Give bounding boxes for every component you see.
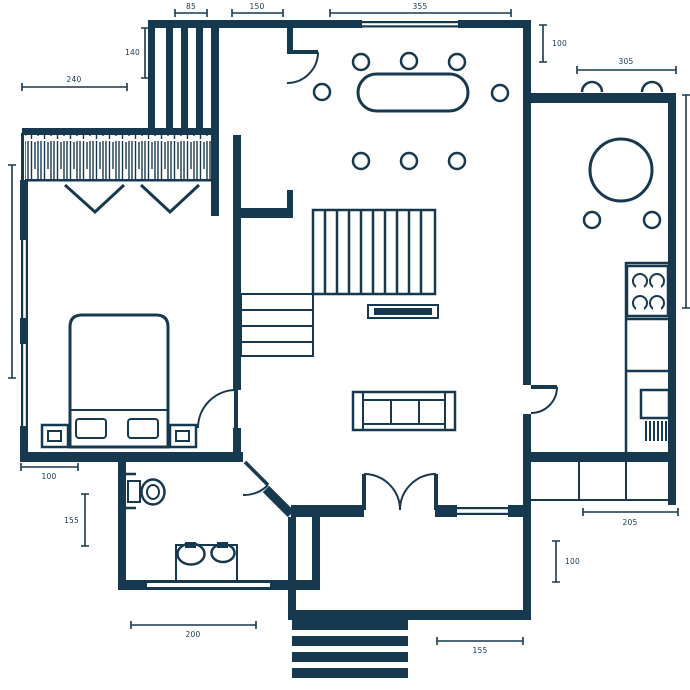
right-wall-upper xyxy=(523,20,531,385)
floor-plan-canvas: 85 150 355 140 240 100 305 10 xyxy=(0,0,690,690)
nightstand-right xyxy=(170,425,196,447)
dining-set xyxy=(314,53,508,169)
closet-divider-2 xyxy=(181,27,188,128)
window-living-south xyxy=(457,507,508,515)
dim-bath-width: 200 xyxy=(131,621,256,639)
kitchen-sink xyxy=(641,390,669,441)
dim-edge-right xyxy=(682,95,690,308)
kitchen-chair xyxy=(584,212,600,228)
dining-door-swing xyxy=(287,50,318,83)
living-south-wall-a xyxy=(291,505,364,517)
living-furniture xyxy=(353,305,455,430)
dim-label: 355 xyxy=(413,2,428,11)
floor-plan-drawing: 85 150 355 140 240 100 305 10 xyxy=(0,0,690,690)
staircase xyxy=(241,210,435,356)
porch-steps xyxy=(292,620,408,678)
window-top xyxy=(362,21,458,28)
dim-label: 155 xyxy=(473,646,488,655)
staircase-upper-treads xyxy=(325,210,421,294)
kitchen-south-wall xyxy=(531,452,676,462)
nightstand-left-drawer xyxy=(48,431,61,441)
window-left-2 xyxy=(21,344,28,426)
closet-bottom-wall xyxy=(22,128,211,135)
left-wall-mullion-1 xyxy=(20,318,28,344)
dining-chair xyxy=(401,53,417,69)
dim-hall-width: 150 xyxy=(232,2,283,17)
dining-chair xyxy=(401,153,417,169)
dim-bedroom-nook: 100 xyxy=(21,463,78,481)
dining-chair xyxy=(449,54,465,70)
dining-chair xyxy=(353,54,369,70)
walls xyxy=(20,20,676,620)
bedroom-south-wall xyxy=(20,452,243,462)
bathroom-fixtures xyxy=(123,474,237,580)
round-table xyxy=(590,139,652,201)
chamfer-wall xyxy=(266,489,291,514)
dining-chair xyxy=(449,153,465,169)
closet-left-wall xyxy=(148,20,155,130)
right-wall-lower xyxy=(523,414,531,612)
wardrobe-hatch xyxy=(25,135,211,181)
dim-bath-height: 155 xyxy=(64,494,89,546)
top-wall-left xyxy=(148,20,362,28)
top-wall-right xyxy=(458,20,530,28)
wardrobe-rail xyxy=(25,179,211,182)
dining-chair xyxy=(353,153,369,169)
hall-wall xyxy=(233,135,241,390)
closet-right-wall xyxy=(211,20,219,216)
dim-label: 100 xyxy=(565,557,580,566)
dim-dining-width: 355 xyxy=(330,2,511,17)
dim-label: 305 xyxy=(619,57,634,66)
dim-label: 85 xyxy=(186,2,196,11)
dining-chair xyxy=(314,84,330,100)
left-wall-top xyxy=(20,180,28,240)
dim-label: 205 xyxy=(623,518,638,527)
dim-porch-width: 155 xyxy=(437,637,523,655)
dim-bedroom-width: 240 xyxy=(22,75,127,91)
bedroom-furniture xyxy=(42,315,196,447)
kitchen-top-wall xyxy=(531,93,676,103)
understair-stub xyxy=(287,190,293,210)
kitchen xyxy=(531,82,669,500)
dim-kitchen-bottom: 205 xyxy=(583,508,678,527)
wall-sconce-right xyxy=(642,82,662,92)
sofa xyxy=(353,392,455,430)
nightstand-right-drawer xyxy=(176,431,189,441)
staircase-lower-treads xyxy=(241,310,313,342)
entry-double-door xyxy=(362,474,438,510)
living-south-wall-b xyxy=(435,505,457,517)
dining-table xyxy=(358,74,468,111)
hanger-rod-v-1 xyxy=(65,185,124,212)
dim-kitchen-width: 305 xyxy=(577,57,676,74)
closet-divider-3 xyxy=(196,27,203,128)
dim-label: 100 xyxy=(552,39,567,48)
wall-sconce-left xyxy=(582,82,602,92)
stove-burners xyxy=(627,266,668,316)
toilet xyxy=(123,474,165,508)
dim-label: 100 xyxy=(42,472,57,481)
dim-label: 155 xyxy=(64,516,79,525)
window-left-1 xyxy=(21,240,28,318)
porch-left-wall xyxy=(288,517,296,612)
wardrobe-left-edge xyxy=(21,133,24,182)
nightstand-left xyxy=(42,425,68,447)
tv-console xyxy=(368,305,438,318)
wardrobe xyxy=(25,135,211,212)
porch-bottom-wall xyxy=(288,610,531,620)
closet-divider-1 xyxy=(166,27,173,128)
understair-wall xyxy=(241,208,293,218)
dim-label: 140 xyxy=(125,48,140,57)
bathroom-door-swing xyxy=(243,462,268,495)
kitchen-chair xyxy=(644,212,660,228)
rear-deck xyxy=(531,462,668,500)
doors xyxy=(198,50,557,510)
bed xyxy=(70,315,168,447)
dim-edge-left xyxy=(8,165,16,378)
dim-label: 240 xyxy=(67,75,82,84)
dim-closet-width: 85 xyxy=(175,2,207,17)
dim-label: 200 xyxy=(186,630,201,639)
pillow-left xyxy=(76,419,106,438)
dim-closet-depth: 140 xyxy=(125,28,149,78)
pillow-right xyxy=(128,419,158,438)
bedroom-door-swing xyxy=(198,390,238,428)
hanger-rod-v-2 xyxy=(141,185,199,212)
bath-window-slot xyxy=(147,583,270,587)
bath-right-wall xyxy=(312,515,320,590)
dim-kitchen-offset: 100 xyxy=(539,25,567,62)
dining-chair xyxy=(492,85,508,101)
dim-label: 150 xyxy=(250,2,265,11)
kitchen-door-swing xyxy=(531,385,557,413)
double-sink-vanity xyxy=(176,543,237,580)
hall-wall-lower xyxy=(233,428,241,454)
dim-porch-height: 100 xyxy=(552,541,580,582)
